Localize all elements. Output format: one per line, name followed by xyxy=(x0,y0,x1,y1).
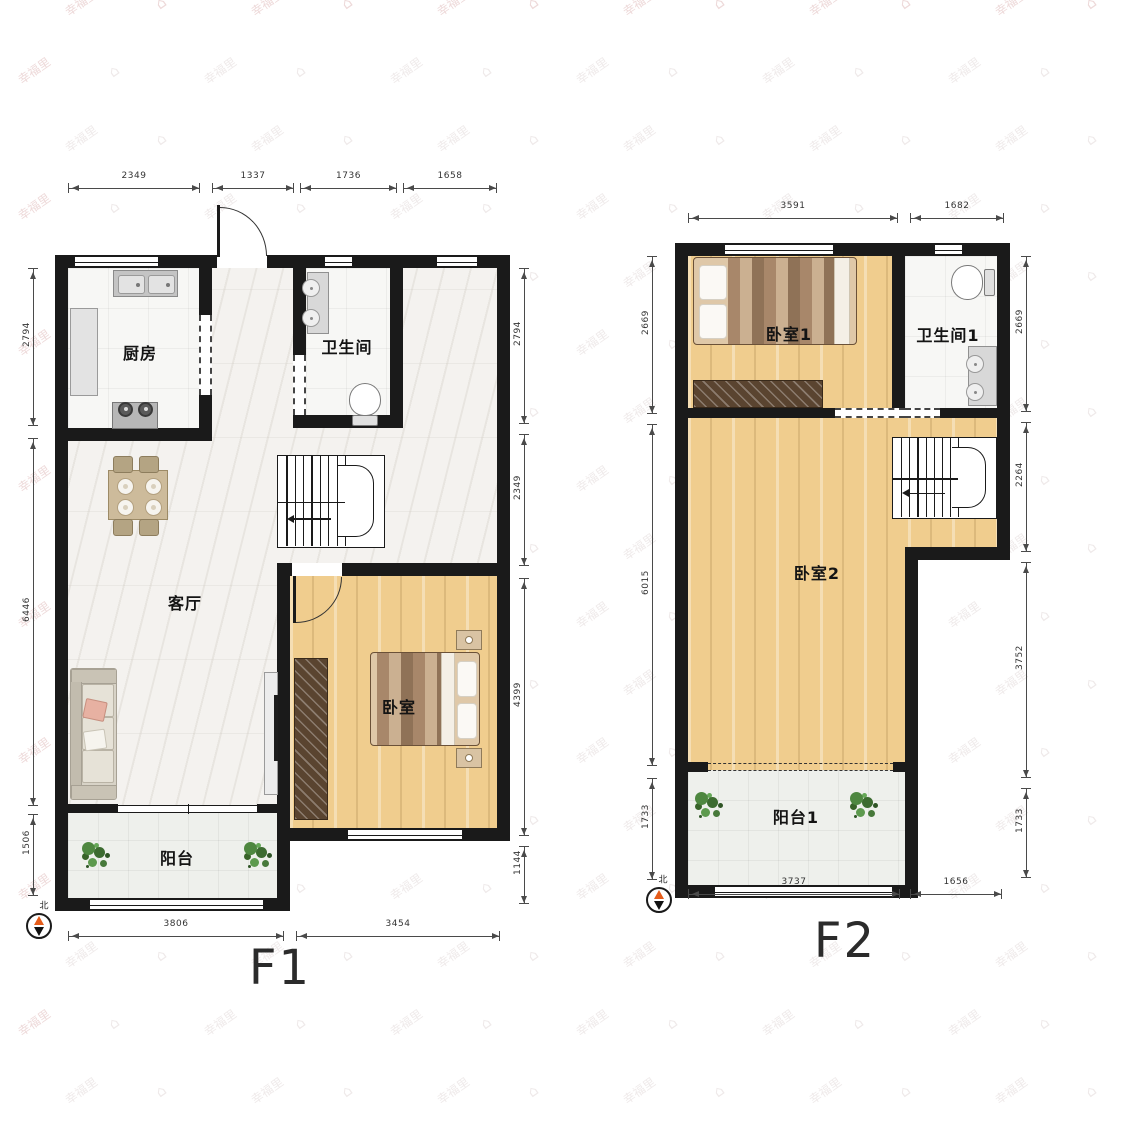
window-bathroom1 xyxy=(935,244,962,255)
wall xyxy=(905,547,1010,560)
nightstand xyxy=(456,630,482,650)
dim-line xyxy=(1026,256,1027,412)
window-kitchen xyxy=(75,256,158,267)
dimension: 1144 xyxy=(519,846,529,904)
watermark-text: 幸福里 xyxy=(991,121,1030,156)
sofa-back xyxy=(71,682,82,785)
dim-line xyxy=(652,778,653,880)
watermark-house-icon: ⌂ xyxy=(291,877,309,897)
stairs-f2 xyxy=(892,437,997,519)
dimension: 3752 xyxy=(1021,562,1031,778)
dimension-label: 1656 xyxy=(910,877,1002,887)
dim-line xyxy=(33,268,34,426)
watermark-text: 幸福里 xyxy=(14,189,53,224)
dim-line xyxy=(910,218,1004,219)
watermark-text: 幸福里 xyxy=(619,1073,658,1108)
compass-south-needle xyxy=(34,927,44,936)
watermark-house-icon: ⌂ xyxy=(524,945,542,965)
dimension: 3737 xyxy=(688,889,900,899)
floor-plan-canvas: ⌂幸福里⌂幸福里⌂幸福里⌂幸福里⌂幸福里⌂幸福里⌂幸福里幸福里⌂幸福里⌂幸福里⌂… xyxy=(0,0,1125,1125)
dim-line xyxy=(688,894,900,895)
watermark-house-icon: ⌂ xyxy=(896,129,914,149)
dim-arrow xyxy=(30,798,36,808)
watermark-house-icon: ⌂ xyxy=(152,1081,170,1101)
wall xyxy=(257,804,277,813)
watermark-house-icon: ⌂ xyxy=(710,129,728,149)
dimension: 1682 xyxy=(910,213,1004,223)
dimension: 2794 xyxy=(28,268,38,426)
dim-line xyxy=(688,218,898,219)
dining-table xyxy=(108,470,168,520)
window-stairhall xyxy=(437,256,477,267)
window-bedroom xyxy=(348,829,462,840)
watermark-house-icon: ⌂ xyxy=(152,945,170,965)
dim-arrow xyxy=(521,269,527,279)
watermark-text: 幸福里 xyxy=(14,53,53,88)
wall xyxy=(893,762,905,772)
watermark-text: 幸福里 xyxy=(61,121,100,156)
dim-line xyxy=(652,256,653,414)
watermark-text: 幸福里 xyxy=(247,1073,286,1108)
dim-arrow xyxy=(521,416,527,426)
watermark-house-icon: ⌂ xyxy=(896,945,914,965)
watermark-text: 幸福里 xyxy=(572,325,611,360)
watermark-house-icon: ⌂ xyxy=(1082,673,1100,693)
wall xyxy=(199,395,212,441)
potted-plant xyxy=(82,842,112,878)
dim-arrow xyxy=(1023,770,1029,780)
dimension: 1736 xyxy=(300,183,397,193)
bed-pillow xyxy=(457,703,477,739)
dim-arrow xyxy=(192,185,202,191)
watermark-text: 幸福里 xyxy=(14,1005,53,1040)
dining-chair xyxy=(139,519,159,536)
wall xyxy=(997,243,1010,560)
dimension-label: 3591 xyxy=(688,201,898,211)
stair-mid-rail xyxy=(893,478,958,480)
dim-arrow xyxy=(689,215,699,221)
dim-arrow xyxy=(69,185,79,191)
watermark-text: 幸福里 xyxy=(944,597,983,632)
watermark-text: 幸福里 xyxy=(572,1005,611,1040)
wall xyxy=(892,243,905,418)
watermark-text: 幸福里 xyxy=(758,1005,797,1040)
dim-arrow xyxy=(911,891,921,897)
room-label-bathroom1: 卫生间1 xyxy=(916,322,979,346)
dim-arrow xyxy=(911,215,921,221)
watermark-text: 幸福里 xyxy=(572,53,611,88)
sink-bowl xyxy=(302,279,320,297)
bedroom-door-gap xyxy=(292,563,342,576)
dim-line xyxy=(68,188,200,189)
watermark-text: 幸福里 xyxy=(386,869,425,904)
watermark-house-icon: ⌂ xyxy=(663,61,681,81)
wall xyxy=(199,255,212,315)
watermark-text: 幸福里 xyxy=(805,1073,844,1108)
sink-bowl xyxy=(966,383,984,401)
watermark-house-icon: ⌂ xyxy=(1082,1081,1100,1101)
watermark-house-icon: ⌂ xyxy=(477,61,495,81)
watermark-house-icon: ⌂ xyxy=(338,1081,356,1101)
room-label-bedroom: 卧室 xyxy=(382,694,416,718)
room-label-bedroom2: 卧室2 xyxy=(794,560,840,584)
dimension: 2669 xyxy=(1021,256,1031,412)
wall xyxy=(293,415,403,428)
dimension-label: 3454 xyxy=(296,919,500,929)
dimension: 1658 xyxy=(403,183,497,193)
room-label-balcony1: 阳台1 xyxy=(773,804,819,828)
watermark-text: 幸福里 xyxy=(944,733,983,768)
opening-balcony1 xyxy=(708,763,893,771)
watermark-house-icon: ⌂ xyxy=(1035,1013,1053,1033)
watermark-text: 幸福里 xyxy=(944,53,983,88)
watermark-house-icon: ⌂ xyxy=(105,61,123,81)
watermark-house-icon: ⌂ xyxy=(1035,197,1053,217)
watermark-house-icon: ⌂ xyxy=(524,1081,542,1101)
sliding-door-balcony xyxy=(118,805,257,813)
watermark-house-icon: ⌂ xyxy=(477,877,495,897)
dining-chair xyxy=(139,456,159,473)
kitchen-fridge xyxy=(70,308,98,396)
potted-plant xyxy=(244,842,274,878)
watermark-house-icon: ⌂ xyxy=(1082,129,1100,149)
dimension: 2264 xyxy=(1021,422,1031,552)
potted-plant xyxy=(850,792,880,828)
sink-basin xyxy=(148,275,175,294)
dining-chair xyxy=(113,519,133,536)
watermark-house-icon: ⌂ xyxy=(896,0,914,13)
dim-arrow xyxy=(996,215,1006,221)
watermark-house-icon: ⌂ xyxy=(1035,741,1053,761)
entry-door-arc xyxy=(220,207,267,256)
watermark-text: 幸福里 xyxy=(805,0,844,20)
dimension: 2349 xyxy=(519,434,529,566)
dim-line xyxy=(1026,562,1027,778)
stove-burner xyxy=(138,402,153,417)
dim-line xyxy=(296,936,500,937)
dining-chair xyxy=(113,456,133,473)
opening-bedroom1-door xyxy=(835,408,905,418)
entry-door-gap xyxy=(217,255,267,268)
watermark-house-icon: ⌂ xyxy=(1035,61,1053,81)
wall xyxy=(688,762,708,772)
watermark-house-icon: ⌂ xyxy=(152,0,170,13)
compass-f2 xyxy=(646,887,672,913)
dimension-label: 1736 xyxy=(300,171,397,181)
watermark-text: 幸福里 xyxy=(619,0,658,20)
dim-arrow xyxy=(521,828,527,838)
dim-arrow xyxy=(521,435,527,445)
watermark-text: 幸福里 xyxy=(433,1073,472,1108)
dim-arrow xyxy=(649,406,655,416)
wall xyxy=(497,255,510,841)
toilet xyxy=(349,383,381,416)
dimension: 1337 xyxy=(212,183,294,193)
stair-direction-arrow xyxy=(290,518,331,520)
dim-arrow xyxy=(30,269,36,279)
watermark-text: 幸福里 xyxy=(61,0,100,20)
watermark-house-icon: ⌂ xyxy=(338,129,356,149)
bathroom-sink xyxy=(307,272,329,334)
watermark-house-icon: ⌂ xyxy=(849,1013,867,1033)
floor-title-f1: F1 xyxy=(249,940,311,996)
watermark-house-icon: ⌂ xyxy=(896,1081,914,1101)
white-pillow xyxy=(83,729,108,752)
room-label-living: 客厅 xyxy=(168,590,202,614)
watermark-text: 幸福里 xyxy=(991,1073,1030,1108)
dim-arrow xyxy=(1023,563,1029,573)
compass-north-label-f2: 北 xyxy=(658,873,667,886)
watermark-house-icon: ⌂ xyxy=(524,0,542,13)
watermark-text: 幸福里 xyxy=(247,0,286,20)
dimension: 1656 xyxy=(910,889,1002,899)
dim-arrow xyxy=(30,439,36,449)
bed-pillow xyxy=(699,265,727,300)
toilet-f2 xyxy=(951,265,983,300)
watermark-house-icon: ⌂ xyxy=(663,197,681,217)
watermark-text: 幸福里 xyxy=(572,461,611,496)
dim-arrow xyxy=(649,758,655,768)
opening-bathroom1-door xyxy=(905,408,940,418)
watermark-house-icon: ⌂ xyxy=(849,61,867,81)
room-label-bathroom: 卫生间 xyxy=(321,334,372,358)
dim-arrow xyxy=(389,185,399,191)
wall xyxy=(940,408,997,418)
dim-arrow xyxy=(521,579,527,589)
sink-bowl xyxy=(966,355,984,373)
dinner-plate xyxy=(117,478,134,495)
storage-bench xyxy=(693,380,823,408)
watermark-text: 幸福里 xyxy=(991,0,1030,20)
wall xyxy=(277,563,290,911)
dim-arrow xyxy=(521,558,527,568)
watermark-house-icon: ⌂ xyxy=(1082,945,1100,965)
watermark-text: 幸福里 xyxy=(572,869,611,904)
dim-line xyxy=(68,936,284,937)
watermark-house-icon: ⌂ xyxy=(1082,401,1100,421)
kitchen-stove xyxy=(112,402,158,429)
dimension: 1506 xyxy=(28,814,38,896)
dim-arrow xyxy=(649,872,655,882)
compass-north-needle xyxy=(654,890,664,899)
room-label-kitchen: 厨房 xyxy=(123,340,157,364)
watermark-house-icon: ⌂ xyxy=(477,1013,495,1033)
opening-kitchen xyxy=(199,315,212,395)
dim-arrow xyxy=(1023,870,1029,880)
stairs-f1 xyxy=(277,455,385,548)
watermark-text: 幸福里 xyxy=(944,1005,983,1040)
dimension: 1733 xyxy=(1021,788,1031,878)
dim-line xyxy=(403,188,497,189)
dim-line xyxy=(33,814,34,896)
bed-sheet xyxy=(834,258,850,345)
dimension-label: 1682 xyxy=(910,201,1004,211)
dim-arrow xyxy=(649,425,655,435)
dim-arrow xyxy=(521,896,527,906)
dimension: 6446 xyxy=(28,438,38,806)
watermark-house-icon: ⌂ xyxy=(291,1013,309,1033)
watermark-house-icon: ⌂ xyxy=(1082,537,1100,557)
dimension: 3454 xyxy=(296,931,500,941)
dim-arrow xyxy=(994,891,1004,897)
dim-line xyxy=(524,434,525,566)
watermark-text: 幸福里 xyxy=(991,937,1030,972)
watermark-text: 幸福里 xyxy=(200,53,239,88)
dim-arrow xyxy=(404,185,414,191)
dim-line xyxy=(212,188,294,189)
dim-arrow xyxy=(297,933,307,939)
dim-arrow xyxy=(649,257,655,267)
potted-plant xyxy=(695,792,725,828)
dimension-label: 3737 xyxy=(688,877,900,887)
watermark-text: 幸福里 xyxy=(433,937,472,972)
wall xyxy=(905,547,918,898)
dim-arrow xyxy=(489,185,499,191)
nightstand xyxy=(456,748,482,768)
watermark-house-icon: ⌂ xyxy=(105,197,123,217)
watermark-house-icon: ⌂ xyxy=(1035,469,1053,489)
watermark-house-icon: ⌂ xyxy=(710,945,728,965)
window-bathroom xyxy=(325,256,352,267)
watermark-text: 幸福里 xyxy=(433,121,472,156)
wall xyxy=(55,804,118,813)
dim-arrow xyxy=(1023,423,1029,433)
dimension: 2349 xyxy=(68,183,200,193)
dimension: 3591 xyxy=(688,213,898,223)
watermark-house-icon: ⌂ xyxy=(1082,0,1100,13)
sofa-armrest xyxy=(71,785,117,800)
stove-burner xyxy=(118,402,133,417)
watermark-house-icon: ⌂ xyxy=(1082,265,1100,285)
dim-arrow xyxy=(213,185,223,191)
dinner-plate xyxy=(145,478,162,495)
stair-direction-arrow xyxy=(905,493,945,495)
watermark-house-icon: ⌂ xyxy=(338,945,356,965)
watermark-text: 幸福里 xyxy=(758,53,797,88)
dim-arrow xyxy=(890,215,900,221)
watermark-text: 幸福里 xyxy=(619,121,658,156)
sink-basin xyxy=(118,275,145,294)
tv-screen xyxy=(274,695,278,761)
watermark-text: 幸福里 xyxy=(572,597,611,632)
bed-sheet xyxy=(441,653,455,746)
watermark-house-icon: ⌂ xyxy=(291,61,309,81)
room-label-bedroom1: 卧室1 xyxy=(766,321,812,345)
compass-f1 xyxy=(26,913,52,939)
dim-arrow xyxy=(1023,257,1029,267)
watermark-house-icon: ⌂ xyxy=(291,197,309,217)
bed-pillow xyxy=(699,304,727,339)
watermark-house-icon: ⌂ xyxy=(1082,809,1100,829)
watermark-text: 幸福里 xyxy=(247,121,286,156)
compass-north-label-f1: 北 xyxy=(39,899,48,912)
dimension-label: 3806 xyxy=(68,919,284,929)
watermark-text: 幸福里 xyxy=(386,1005,425,1040)
dim-line xyxy=(1026,422,1027,552)
watermark-text: 幸福里 xyxy=(572,733,611,768)
dimension-label: 1658 xyxy=(403,171,497,181)
dim-arrow xyxy=(689,891,699,897)
watermark-text: 幸福里 xyxy=(61,1073,100,1108)
dim-line xyxy=(33,438,34,806)
watermark-text: 幸福里 xyxy=(386,53,425,88)
watermark-house-icon: ⌂ xyxy=(1035,333,1053,353)
watermark-house-icon: ⌂ xyxy=(477,197,495,217)
kitchen-sink xyxy=(113,270,178,297)
dim-arrow xyxy=(69,933,79,939)
window-bedroom1 xyxy=(725,244,833,255)
dimension-label: 2349 xyxy=(68,171,200,181)
watermark-house-icon: ⌂ xyxy=(663,1013,681,1033)
opening-bathroom-door xyxy=(293,355,306,415)
watermark-text: 幸福里 xyxy=(200,1005,239,1040)
dim-arrow xyxy=(1023,404,1029,414)
dim-line xyxy=(524,578,525,836)
sink-bowl xyxy=(302,309,320,327)
toilet-tank xyxy=(352,415,378,426)
dim-arrow xyxy=(492,933,502,939)
dim-arrow xyxy=(30,418,36,428)
watermark-house-icon: ⌂ xyxy=(710,0,728,13)
dimension: 2794 xyxy=(519,268,529,424)
watermark-house-icon: ⌂ xyxy=(338,0,356,13)
compass-south-needle xyxy=(654,901,664,910)
dim-arrow xyxy=(301,185,311,191)
bathroom1-sink xyxy=(968,346,997,406)
dimension: 4399 xyxy=(519,578,529,836)
dimension: 2669 xyxy=(647,256,657,414)
dim-line xyxy=(524,268,525,424)
watermark-text: 幸福里 xyxy=(572,189,611,224)
watermark-house-icon: ⌂ xyxy=(710,1081,728,1101)
dim-line xyxy=(300,188,397,189)
dim-line xyxy=(652,424,653,766)
watermark-text: 幸福里 xyxy=(433,0,472,20)
watermark-house-icon: ⌂ xyxy=(105,1013,123,1033)
window-balcony xyxy=(90,899,263,910)
dim-arrow xyxy=(1023,789,1029,799)
stair-mid-rail xyxy=(278,502,345,504)
watermark-text: 幸福里 xyxy=(386,189,425,224)
dim-arrow xyxy=(276,933,286,939)
dim-line xyxy=(910,894,1002,895)
room-label-balcony: 阳台 xyxy=(160,845,194,869)
watermark-text: 幸福里 xyxy=(61,937,100,972)
dinner-plate xyxy=(117,499,134,516)
dim-line xyxy=(1026,788,1027,878)
dimension: 1733 xyxy=(647,778,657,880)
watermark-house-icon: ⌂ xyxy=(152,129,170,149)
compass-north-needle xyxy=(34,916,44,925)
dim-arrow xyxy=(892,891,902,897)
bed-pillow xyxy=(457,661,477,697)
wall xyxy=(390,255,403,415)
watermark-house-icon: ⌂ xyxy=(1035,877,1053,897)
wall xyxy=(675,243,688,898)
watermark-house-icon: ⌂ xyxy=(1035,605,1053,625)
wall xyxy=(293,255,306,355)
dimension: 6015 xyxy=(647,424,657,766)
dim-arrow xyxy=(286,185,296,191)
watermark-house-icon: ⌂ xyxy=(524,129,542,149)
toilet-tank-f2 xyxy=(984,269,995,296)
sofa-cushion xyxy=(82,750,114,783)
floor-title-f2: F2 xyxy=(814,913,876,969)
dim-arrow xyxy=(1023,544,1029,554)
wall xyxy=(55,428,212,441)
dim-arrow xyxy=(30,815,36,825)
watermark-text: 幸福里 xyxy=(619,937,658,972)
